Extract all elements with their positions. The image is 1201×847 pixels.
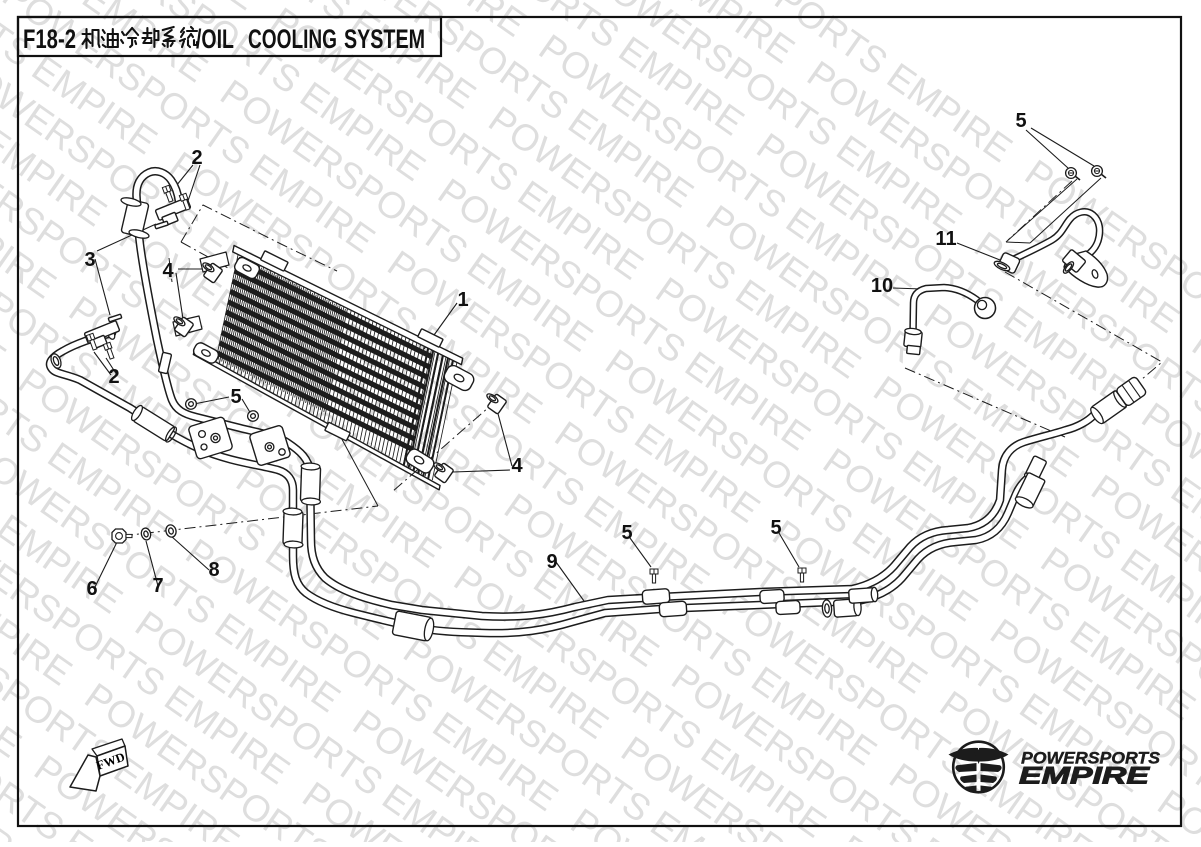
svg-text:4: 4 <box>162 260 174 282</box>
svg-text:7: 7 <box>152 575 163 597</box>
svg-text:8: 8 <box>208 559 219 581</box>
svg-text:10: 10 <box>871 275 893 297</box>
svg-text:1: 1 <box>457 289 468 311</box>
svg-text:11: 11 <box>935 228 956 250</box>
svg-text:5: 5 <box>621 522 632 544</box>
svg-text:6: 6 <box>86 578 97 600</box>
svg-text:/OIL: /OIL <box>196 24 234 54</box>
svg-text:4: 4 <box>511 455 523 477</box>
svg-text:SYSTEM: SYSTEM <box>344 24 425 54</box>
svg-text:3: 3 <box>84 249 95 271</box>
svg-text:9: 9 <box>546 551 557 573</box>
svg-text:5: 5 <box>230 386 241 408</box>
svg-text:5: 5 <box>1015 110 1026 132</box>
svg-text:EMPIRE: EMPIRE <box>1019 763 1150 790</box>
svg-text:COOLING: COOLING <box>248 24 337 54</box>
svg-text:2: 2 <box>108 366 119 388</box>
svg-text:5: 5 <box>770 517 781 539</box>
svg-text:F18-2: F18-2 <box>23 24 76 54</box>
svg-text:2: 2 <box>191 147 202 169</box>
